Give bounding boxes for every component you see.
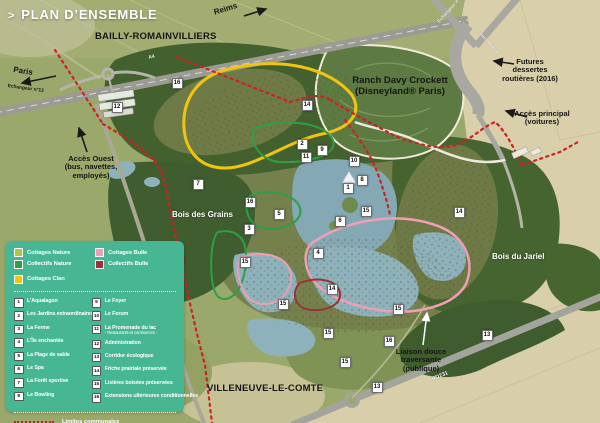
- legend-zone-col-right: Cottages BulleCollectifs Bulle: [95, 248, 176, 286]
- map-marker-15: 15: [361, 206, 372, 217]
- map-marker-8: 8: [357, 175, 368, 186]
- legend-panel: Cottages NatureCollectifs NatureCottages…: [6, 241, 184, 412]
- legend-item-label: Lisières boisées préservées: [105, 380, 173, 386]
- map-marker-2: 2: [297, 139, 308, 150]
- legend-item-label: Les Jardins extraordinaires: [27, 311, 94, 317]
- legend-item-row: 11La Promenade du lac- Restaurants et co…: [92, 325, 176, 336]
- legend-item-label: Le Foyer: [105, 298, 126, 304]
- legend-zones: Cottages NatureCollectifs NatureCottages…: [14, 248, 176, 286]
- label-futures-dessertes: Futures dessertes routières (2016): [498, 58, 562, 83]
- map-marker-16: 16: [172, 78, 183, 89]
- legend-item-row: 9Le Foyer: [92, 298, 176, 308]
- legend-item-row: 4L’Île enchantée: [14, 338, 92, 348]
- legend-item-row: 6Le Spa: [14, 365, 92, 375]
- legend-item-label: La Ferme: [27, 325, 50, 331]
- legend-item-label: Friche prairiale préservée: [105, 366, 167, 372]
- legend-item-label: L’Aqualagon: [27, 298, 58, 304]
- map-marker-1: 1: [343, 183, 354, 194]
- legend-item-label: La Promenade du lac- Restaurants et comm…: [105, 325, 157, 336]
- legend-item-label: Le Spa: [27, 365, 44, 371]
- zone-color-swatch: [14, 275, 23, 284]
- plan-densemble-map: >PLAN D’ENSEMBLE BAILLY-ROMAINVILLIERS R…: [0, 0, 600, 423]
- legend-item-row: 14Friche prairiale préservée: [92, 366, 176, 376]
- label-acces-principal: Accès principal (voitures): [514, 110, 570, 127]
- legend-zone-row: Collectifs Bulle: [95, 260, 176, 269]
- legend-item-number: 2: [14, 311, 24, 321]
- zone-label: Cottages Clan: [27, 276, 65, 282]
- map-marker-3: 3: [244, 224, 255, 235]
- legend-item-row: 12Administration: [92, 340, 176, 350]
- map-marker-16: 16: [384, 336, 395, 347]
- zone-label: Collectifs Nature: [27, 261, 71, 267]
- legend-item-label: Extensions ultérieures conditionnelles: [105, 393, 198, 399]
- zone-color-swatch: [14, 248, 23, 257]
- legend-item-number: 16: [92, 393, 102, 403]
- legend-item-number: 8: [14, 392, 24, 402]
- zone-label: Collectifs Bulle: [108, 261, 148, 267]
- legend-item-row: 16Extensions ultérieures conditionnelles: [92, 393, 176, 403]
- legend-item-row: 8Le Bowling: [14, 392, 92, 402]
- map-marker-10: 10: [349, 156, 360, 167]
- legend-item-number: 14: [92, 366, 102, 376]
- map-marker-14: 14: [327, 284, 338, 295]
- legend-item-number: 12: [92, 340, 102, 350]
- map-marker-6: 6: [335, 216, 346, 227]
- legend-item-row: 3La Ferme: [14, 325, 92, 335]
- legend-item-number: 4: [14, 338, 24, 348]
- legend-item-label: La Forêt sportive: [27, 378, 68, 384]
- zone-color-swatch: [95, 248, 104, 257]
- legend-zone-row: Cottages Bulle: [95, 248, 176, 257]
- legend-item-number: 9: [92, 298, 102, 308]
- label-liaison-douce: Liaison douce traversante (publique): [394, 348, 448, 373]
- legend-items-col-left: 1L’Aqualagon2Les Jardins extraordinaires…: [14, 298, 92, 407]
- legend-item-label: Le Bowling: [27, 392, 54, 398]
- legend-zone-row: Cottages Nature: [14, 248, 95, 257]
- label-bois-des-grains: Bois des Grains: [172, 211, 233, 220]
- legend-zone-row: Collectifs Nature: [14, 260, 95, 269]
- page-title: >PLAN D’ENSEMBLE: [8, 8, 157, 23]
- legend-item-number: 6: [14, 365, 24, 375]
- legend-item-row: 7La Forêt sportive: [14, 378, 92, 388]
- map-marker-9: 9: [317, 145, 328, 156]
- legend-item-number: 11: [92, 325, 102, 335]
- map-marker-13: 13: [372, 382, 383, 393]
- map-marker-13: 13: [482, 330, 493, 341]
- legend-item-label: La Plage de sable: [27, 352, 70, 358]
- legend-item-sublabel: - Restaurants et commerces -: [105, 331, 157, 336]
- legend-items: 1L’Aqualagon2Les Jardins extraordinaires…: [14, 298, 176, 407]
- legend-item-row: 10Le Forum: [92, 311, 176, 321]
- boundary-swatch: [14, 421, 54, 423]
- legend-boundary-row: Limites communales: [14, 419, 176, 423]
- legend-item-row: 1L’Aqualagon: [14, 298, 92, 308]
- map-marker-15: 15: [278, 299, 289, 310]
- map-marker-15: 15: [393, 304, 404, 315]
- map-marker-16: 16: [245, 197, 256, 208]
- map-marker-15: 15: [340, 357, 351, 368]
- label-villeneuve-le-comte: VILLENEUVE-LE-COMTE: [207, 384, 323, 395]
- legend-item-number: 1: [14, 298, 24, 308]
- boundary-label: Limites communales: [62, 419, 119, 423]
- legend-separator-bottom: [14, 412, 176, 413]
- map-marker-11: 11: [301, 152, 312, 163]
- legend-item-number: 15: [92, 380, 102, 390]
- legend-item-label: Le Forum: [105, 311, 128, 317]
- legend-item-row: 13Corridor écologique: [92, 353, 176, 363]
- legend-item-label: L’Île enchantée: [27, 338, 63, 344]
- map-marker-14: 14: [302, 100, 313, 111]
- legend-zone-row: Cottages Clan: [14, 275, 95, 284]
- title-chevron-icon: >: [8, 10, 15, 22]
- zone-color-swatch: [95, 260, 104, 269]
- legend-item-number: 3: [14, 325, 24, 335]
- legend-item-row: 5La Plage de sable: [14, 352, 92, 362]
- map-marker-12: 12: [112, 102, 123, 113]
- zone-label: Cottages Nature: [27, 250, 70, 256]
- map-marker-15: 15: [323, 328, 334, 339]
- map-marker-14: 14: [454, 207, 465, 218]
- map-marker-4: 4: [313, 248, 324, 259]
- map-marker-7: 7: [193, 179, 204, 190]
- zone-label: Cottages Bulle: [108, 250, 147, 256]
- legend-item-label: Administration: [105, 340, 141, 346]
- legend-separator-top: [14, 291, 176, 292]
- zone-color-swatch: [14, 260, 23, 269]
- map-marker-15: 15: [240, 257, 251, 268]
- legend-item-label: Corridor écologique: [105, 353, 154, 359]
- label-ranch-davy-crockett: Ranch Davy Crockett (Disneyland® Paris): [348, 76, 452, 97]
- page-title-text: PLAN D’ENSEMBLE: [21, 7, 157, 22]
- legend-item-row: 15Lisières boisées préservées: [92, 380, 176, 390]
- legend-item-row: 2Les Jardins extraordinaires: [14, 311, 92, 321]
- label-acces-ouest: Accès Ouest (bus, navettes, employés): [64, 155, 118, 180]
- legend-items-col-right: 9Le Foyer10Le Forum11La Promenade du lac…: [92, 298, 176, 407]
- legend-item-number: 5: [14, 352, 24, 362]
- label-bois-du-jariel: Bois du Jariel: [492, 253, 544, 262]
- legend-zone-col-left: Cottages NatureCollectifs NatureCottages…: [14, 248, 95, 286]
- map-marker-5: 5: [274, 209, 285, 220]
- label-bailly-romainvilliers: BAILLY-ROMAINVILLIERS: [95, 32, 217, 43]
- legend-item-number: 7: [14, 378, 24, 388]
- legend-item-number: 10: [92, 311, 102, 321]
- legend-item-number: 13: [92, 353, 102, 363]
